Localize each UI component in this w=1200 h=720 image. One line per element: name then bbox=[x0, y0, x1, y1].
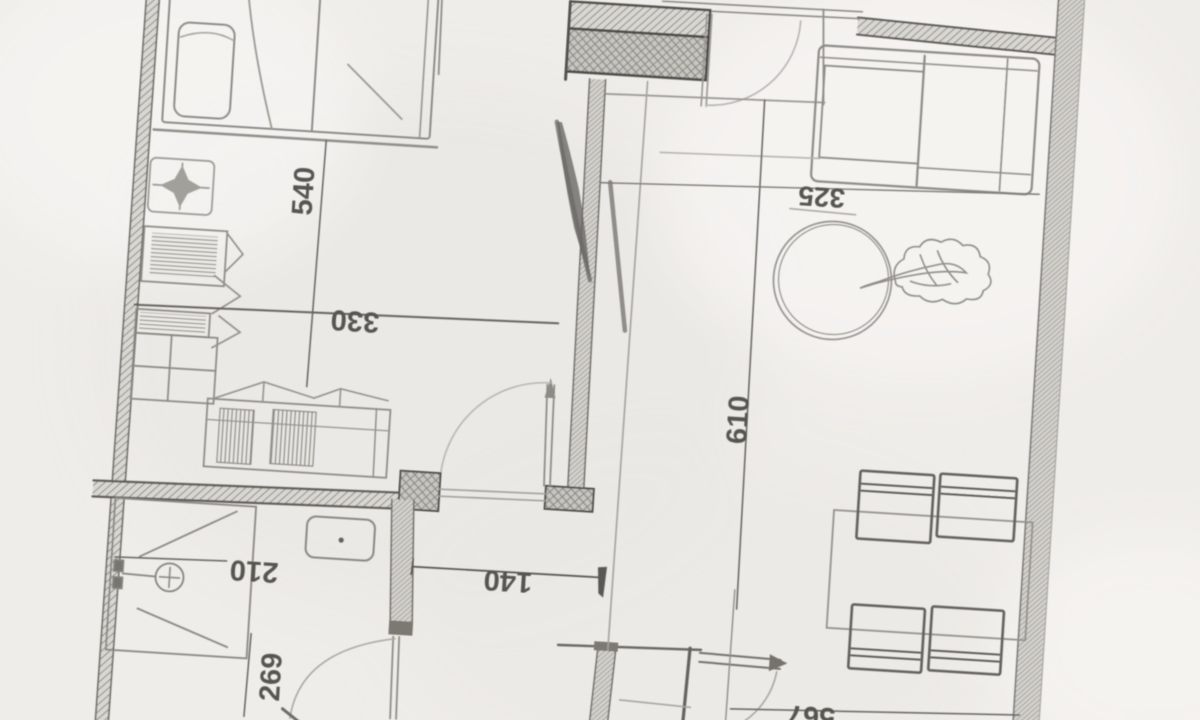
svg-text:140: 140 bbox=[483, 563, 533, 598]
svg-text:325: 325 bbox=[797, 180, 846, 214]
svg-text:330: 330 bbox=[330, 303, 380, 338]
svg-text:567: 567 bbox=[786, 698, 836, 720]
svg-text:210: 210 bbox=[229, 553, 279, 588]
svg-text:269: 269 bbox=[254, 652, 289, 702]
svg-text:610: 610 bbox=[721, 395, 756, 445]
svg-text:540: 540 bbox=[287, 166, 322, 216]
